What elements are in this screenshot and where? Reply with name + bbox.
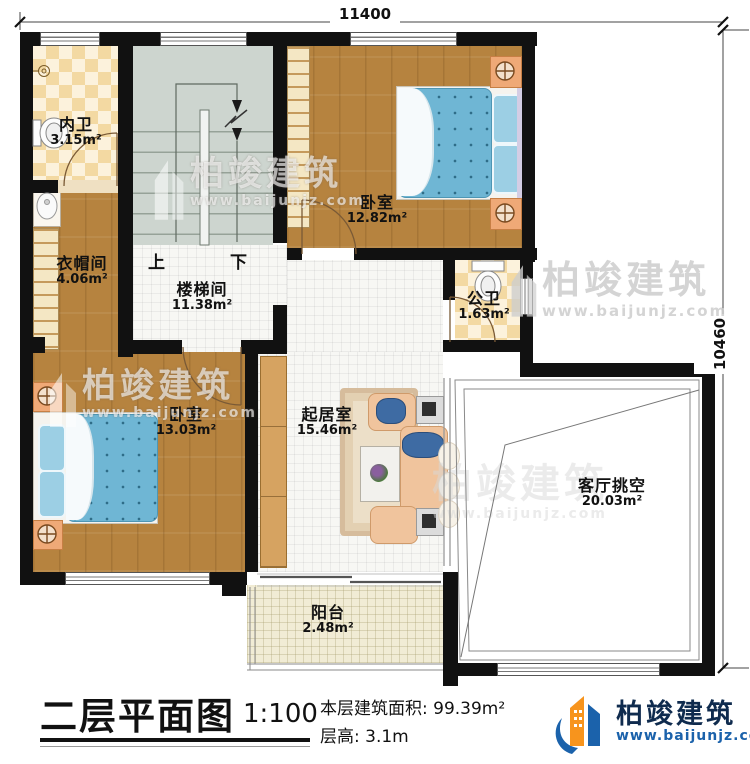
drawing-title: 二层平面图 (40, 686, 235, 740)
drawing-scale: 1:100 (243, 699, 318, 729)
room-label-void: 客厅挑空 20.03m² (542, 477, 682, 510)
stair-arrow (232, 128, 242, 141)
room-name: 起居室 (267, 406, 387, 424)
dimension-top: 11400 (330, 5, 400, 23)
room-name: 客厅挑空 (542, 477, 682, 495)
room-label-stairwell: 楼梯间 11.38m² (142, 281, 262, 314)
void-railing (444, 378, 450, 566)
room-name: 卧室 (317, 194, 437, 212)
dimension-right: 10460 (694, 314, 746, 374)
room-area: 11.38m² (142, 299, 262, 314)
room-label-balcony: 阳台 2.48m² (268, 604, 388, 637)
room-area: 2.48m² (268, 622, 388, 637)
brand-website: www.baijunjz.com (616, 728, 750, 744)
room-name: 衣帽间 (22, 255, 142, 273)
floor-area-value: 99.39m² (433, 699, 505, 719)
title-rule-thin (40, 746, 310, 747)
brand-name: 柏竣建筑 (616, 692, 736, 731)
title-rule-thick (40, 738, 310, 742)
room-area: 12.82m² (317, 212, 437, 227)
room-name: 公卫 (434, 290, 534, 308)
room-name: 内卫 (26, 116, 126, 134)
room-area: 20.03m² (542, 495, 682, 510)
floor-area-label: 本层建筑面积: (320, 699, 428, 719)
floor-height-label: 层高: (320, 727, 360, 747)
stair-handrail (200, 110, 209, 245)
sliding-door (257, 574, 443, 586)
floor-area-line: 本层建筑面积: 99.39m² (320, 694, 505, 719)
floor-height-value: 3.1m (365, 727, 409, 747)
room-name: 卧室 (126, 406, 246, 424)
floor-height-line: 层高: 3.1m (320, 722, 409, 747)
room-label-bathroom-inner: 内卫 3.15m² (26, 116, 126, 149)
room-area: 4.06m² (22, 273, 142, 288)
title-block: 二层平面图 1:100 本层建筑面积: 99.39m² 层高: 3.1m 柏竣建… (0, 686, 750, 764)
sink (37, 193, 57, 219)
room-area: 15.46m² (267, 424, 387, 439)
plan-linework (0, 0, 750, 764)
void-outline (455, 380, 699, 660)
stair-arrow (232, 100, 242, 113)
stair-down-label: 下 (230, 248, 247, 273)
room-area: 13.03m² (126, 424, 246, 439)
room-label-bedroom1: 卧室 12.82m² (317, 194, 437, 227)
stair-up-label: 上 (148, 248, 165, 273)
floor-plan: 内卫 3.15m² 卧室 12.82m² 衣帽间 4.06m² 楼梯间 11.3… (0, 0, 750, 764)
room-label-bedroom2: 卧室 13.03m² (126, 406, 246, 439)
brand-logo-icon (548, 688, 612, 760)
room-name: 阳台 (268, 604, 388, 622)
room-area: 3.15m² (26, 134, 126, 149)
room-name: 楼梯间 (142, 281, 262, 299)
room-label-bathroom-public: 公卫 1.63m² (434, 290, 534, 323)
room-label-livingroom: 起居室 15.46m² (267, 406, 387, 439)
room-label-cloakroom: 衣帽间 4.06m² (22, 255, 142, 288)
room-area: 1.63m² (434, 308, 534, 323)
shower-head (33, 66, 50, 77)
